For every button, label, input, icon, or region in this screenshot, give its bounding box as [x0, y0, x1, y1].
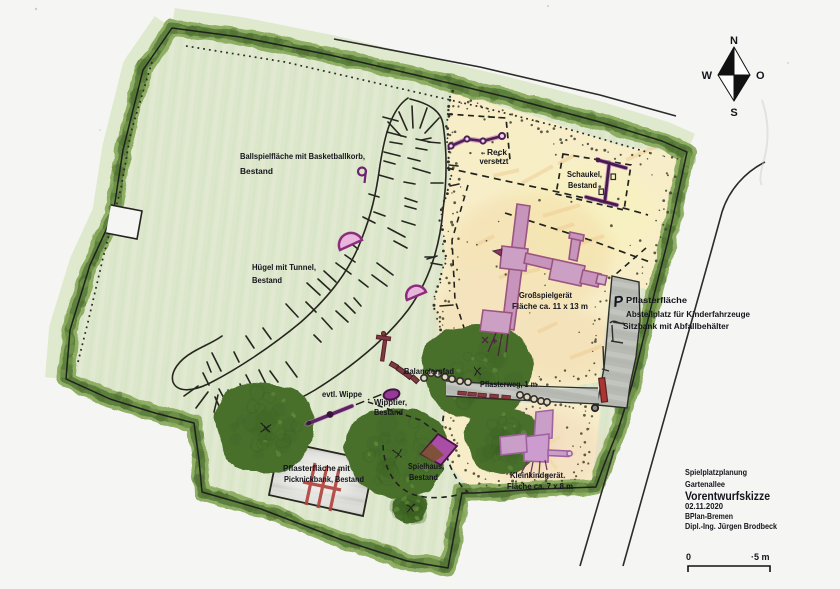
svg-text:Sitzbank mit Abfallbehälter: Sitzbank mit Abfallbehälter — [623, 321, 730, 331]
svg-text:Bestand: Bestand — [240, 167, 273, 176]
svg-text:Bestand: Bestand — [374, 408, 403, 417]
svg-text:S: S — [730, 107, 737, 119]
svg-text:Kleinkindgerät: Kleinkindgerät — [510, 471, 563, 480]
svg-text:02.11.2020: 02.11.2020 — [685, 501, 723, 511]
svg-text:Gartenallee: Gartenallee — [685, 479, 725, 489]
svg-text:Schaukel,: Schaukel, — [567, 170, 602, 179]
svg-text:N: N — [730, 35, 738, 47]
svg-text:Bestand: Bestand — [409, 473, 438, 482]
svg-text:Bestand: Bestand — [568, 181, 597, 190]
svg-text:Abstellplatz für Kinderfahrzeu: Abstellplatz für Kinderfahrzeuge — [626, 309, 750, 319]
svg-text:Pflasterfläche mit: Pflasterfläche mit — [283, 464, 350, 473]
svg-text:0: 0 — [686, 552, 691, 562]
svg-text:Balancierpfad: Balancierpfad — [404, 367, 454, 376]
svg-text:W: W — [702, 70, 713, 82]
svg-text:Spielplatzplanung: Spielplatzplanung — [685, 467, 747, 477]
svg-text:Fläche ca. 7 x 8 m: Fläche ca. 7 x 8 m — [507, 482, 573, 491]
svg-text:Pflasterfläche: Pflasterfläche — [626, 295, 687, 305]
svg-text:·5 m: ·5 m — [751, 552, 770, 562]
svg-text:O: O — [756, 70, 765, 82]
svg-text:versetzt: versetzt — [480, 157, 509, 166]
svg-text:Bestand: Bestand — [252, 276, 282, 285]
svg-text:evtl. Wippe: evtl. Wippe — [322, 390, 363, 399]
svg-text:Spielhaus,: Spielhaus, — [408, 462, 444, 471]
svg-text:Großspielgerät: Großspielgerät — [519, 291, 572, 300]
svg-text:Picknickbank, Bestand: Picknickbank, Bestand — [284, 475, 364, 484]
svg-text:Dipl.-Ing. Jürgen Brodbeck: Dipl.-Ing. Jürgen Brodbeck — [685, 521, 777, 531]
svg-text:Ballspielfläche mit Basketball: Ballspielfläche mit Basketballkorb, — [240, 152, 365, 161]
svg-text:Pflasterweg, 1 m: Pflasterweg, 1 m — [480, 380, 537, 389]
svg-text:Reck: Reck — [487, 148, 508, 157]
svg-text:Wipptier,: Wipptier, — [374, 398, 407, 407]
svg-text:Hügel mit Tunnel,: Hügel mit Tunnel, — [252, 263, 316, 272]
svg-text:BPlan-Bremen: BPlan-Bremen — [685, 511, 733, 521]
svg-text:Fläche ca. 11 x 13 m: Fläche ca. 11 x 13 m — [512, 302, 588, 311]
